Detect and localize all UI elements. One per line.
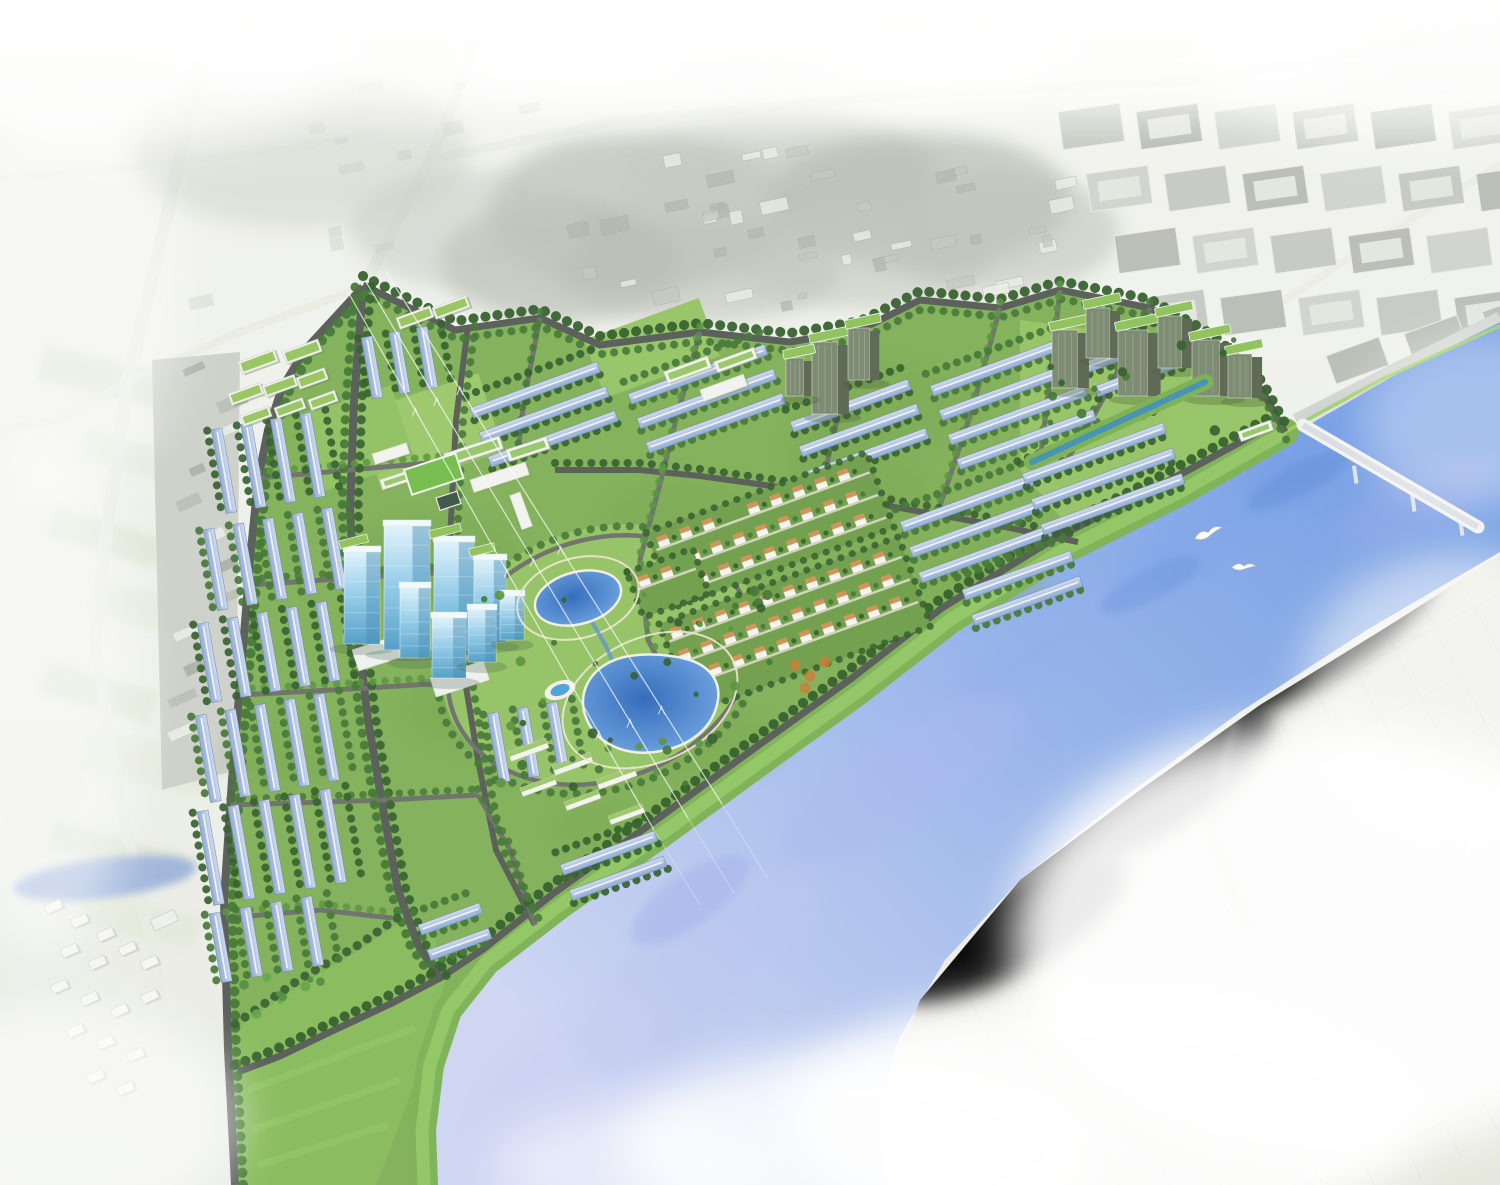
fog	[0, 0, 1500, 1185]
aerial-scene	[0, 0, 1500, 1185]
masterplan-rendering	[0, 0, 1500, 1185]
